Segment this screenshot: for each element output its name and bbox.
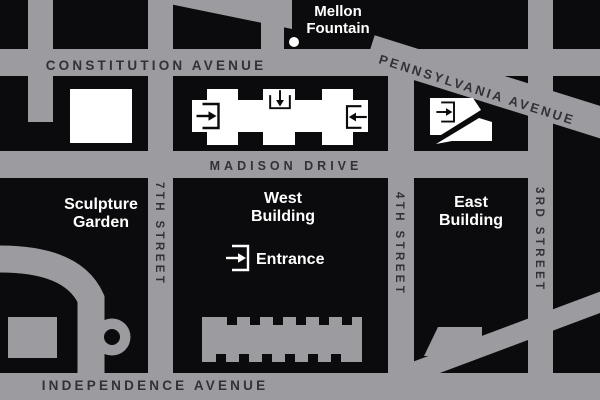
- nga-visitor-map: CONSTITUTION AVENUE PENNSYLVANIA AVENUE …: [0, 0, 600, 400]
- mellon-fountain-label: Mellon Fountain: [306, 3, 369, 37]
- constitution-avenue-label: CONSTITUTION AVENUE: [46, 58, 267, 73]
- seventh-street-label: 7TH STREET: [153, 182, 165, 286]
- west-building-line1: West: [264, 190, 303, 207]
- independence-avenue-label: INDEPENDENCE AVENUE: [42, 378, 269, 393]
- sw-square-building: [8, 317, 57, 358]
- sculpture-garden-line1: Sculpture: [64, 196, 138, 213]
- sculpture-garden-line2: Garden: [73, 214, 129, 231]
- madison-drive-label: MADISON DRIVE: [210, 159, 363, 173]
- fourth-street-label: 4TH STREET: [393, 192, 405, 296]
- west-building-line2: Building: [251, 208, 315, 225]
- east-building-line1: East: [454, 194, 488, 211]
- sw-ring-hole: [104, 329, 120, 345]
- street-nw-connector: [261, 0, 284, 55]
- mellon-fountain-dot: [289, 37, 299, 47]
- entrance-label: Entrance: [256, 251, 325, 268]
- east-building-line2: Building: [439, 212, 503, 229]
- mellon-fountain-line2: Fountain: [306, 20, 369, 37]
- nw-white-square: [70, 89, 132, 143]
- third-street-label: 3RD STREET: [533, 187, 545, 293]
- sculpture-garden-label: Sculpture Garden: [64, 196, 138, 231]
- mellon-fountain-line1: Mellon: [314, 3, 362, 20]
